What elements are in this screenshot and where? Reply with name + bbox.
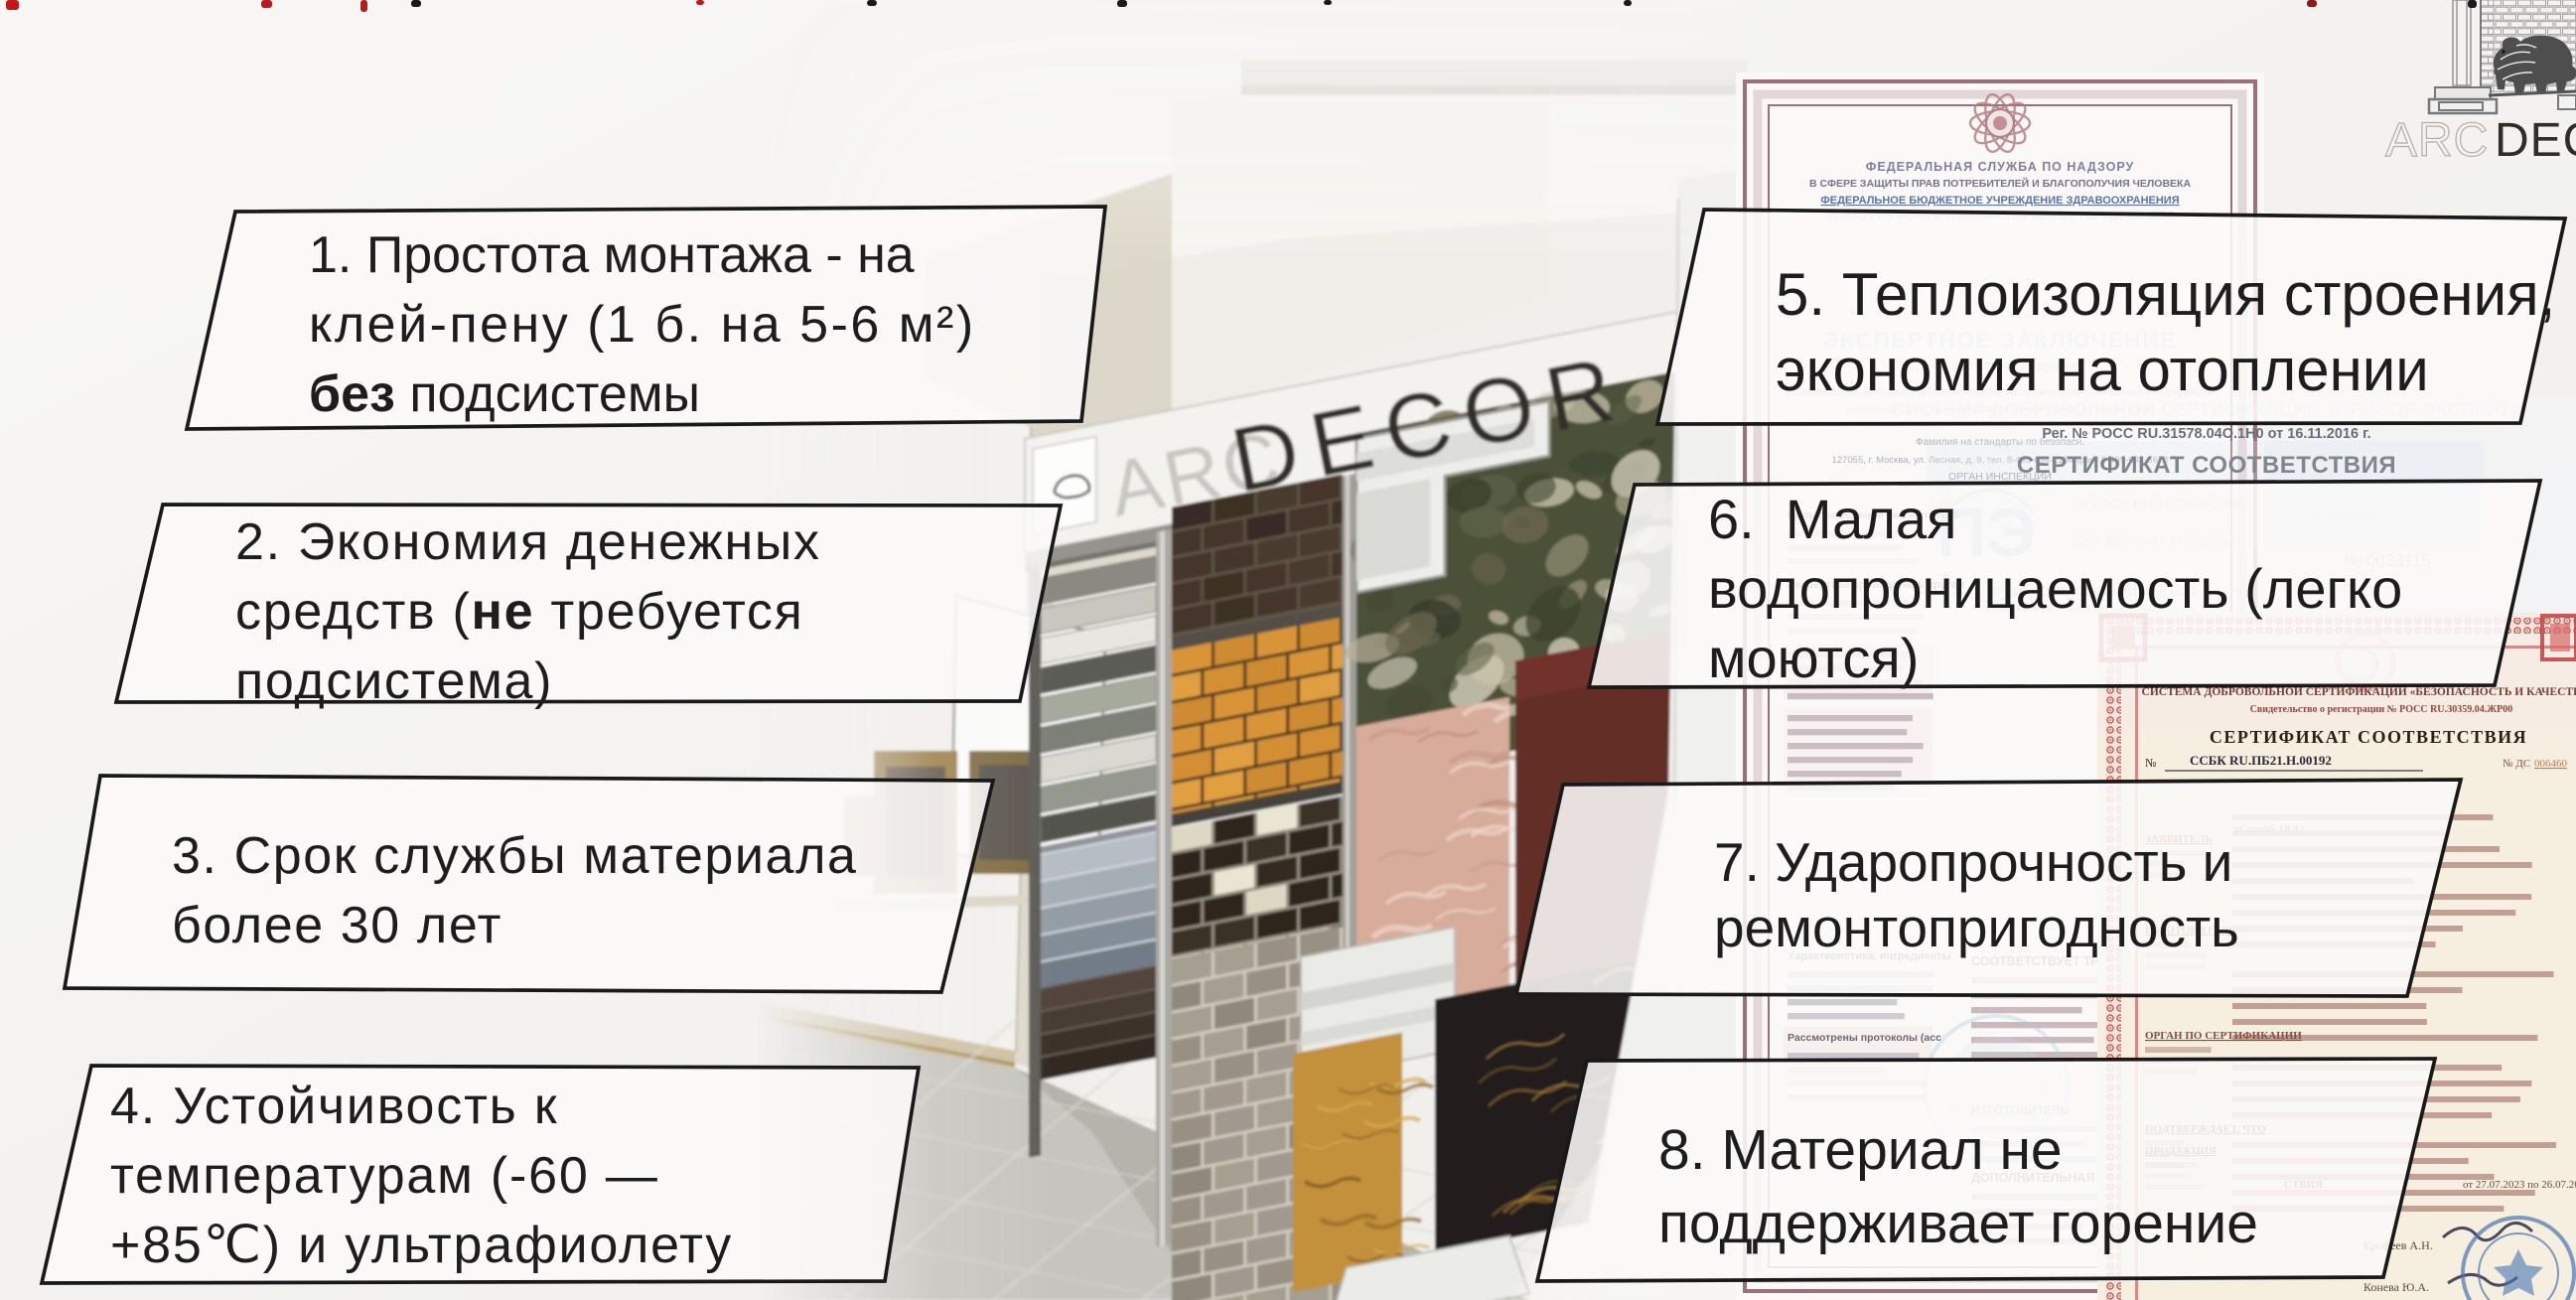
svg-text:DEC: DEC xyxy=(2495,114,2576,167)
svg-text:ФЕДЕРАЛЬНОЕ БЮДЖЕТНОЕ УЧРЕЖДЕН: ФЕДЕРАЛЬНОЕ БЮДЖЕТНОЕ УЧРЕЖДЕНИЕ ЗДРАВОО… xyxy=(1820,195,2179,207)
svg-text:Рассмотрены протоколы (асс: Рассмотрены протоколы (асс xyxy=(1788,1032,1941,1044)
svg-text:006460: 006460 xyxy=(2534,758,2568,770)
svg-text:ССБК RU.ПБ21.Н.00192: ССБК RU.ПБ21.Н.00192 xyxy=(2190,753,2332,768)
svg-text:Конева Ю.А.: Конева Ю.А. xyxy=(2363,1280,2429,1294)
svg-text:Свидетельство о регистрации №: Свидетельство о регистрации № РОСС RU.З0… xyxy=(2250,704,2513,715)
svg-text:Рег. № РОСС RU.31578.04О.1Н0 о: Рег. № РОСС RU.31578.04О.1Н0 от 16.11.20… xyxy=(2042,426,2370,442)
svg-text:№: № xyxy=(2145,756,2156,770)
svg-text:ARC: ARC xyxy=(2385,114,2489,167)
svg-text:ФЕДЕРАЛЬНАЯ СЛУЖБА ПО НАДЗОРУ: ФЕДЕРАЛЬНАЯ СЛУЖБА ПО НАДЗОРУ xyxy=(1866,160,2135,174)
svg-text:В СФЕРЕ ЗАЩИТЫ ПРАВ ПОТРЕБИТЕЛ: В СФЕРЕ ЗАЩИТЫ ПРАВ ПОТРЕБИТЕЛЕЙ И БЛАГО… xyxy=(1809,177,2192,190)
svg-text:от 27.07.2023 по 26.07.2028: от 27.07.2023 по 26.07.2028 xyxy=(2463,1179,2576,1191)
svg-text:СЕРТИФИКАТ СООТВЕТСТВИЯ: СЕРТИФИКАТ СООТВЕТСТВИЯ xyxy=(2210,727,2527,747)
svg-text:№ ДС: № ДС xyxy=(2503,758,2530,770)
